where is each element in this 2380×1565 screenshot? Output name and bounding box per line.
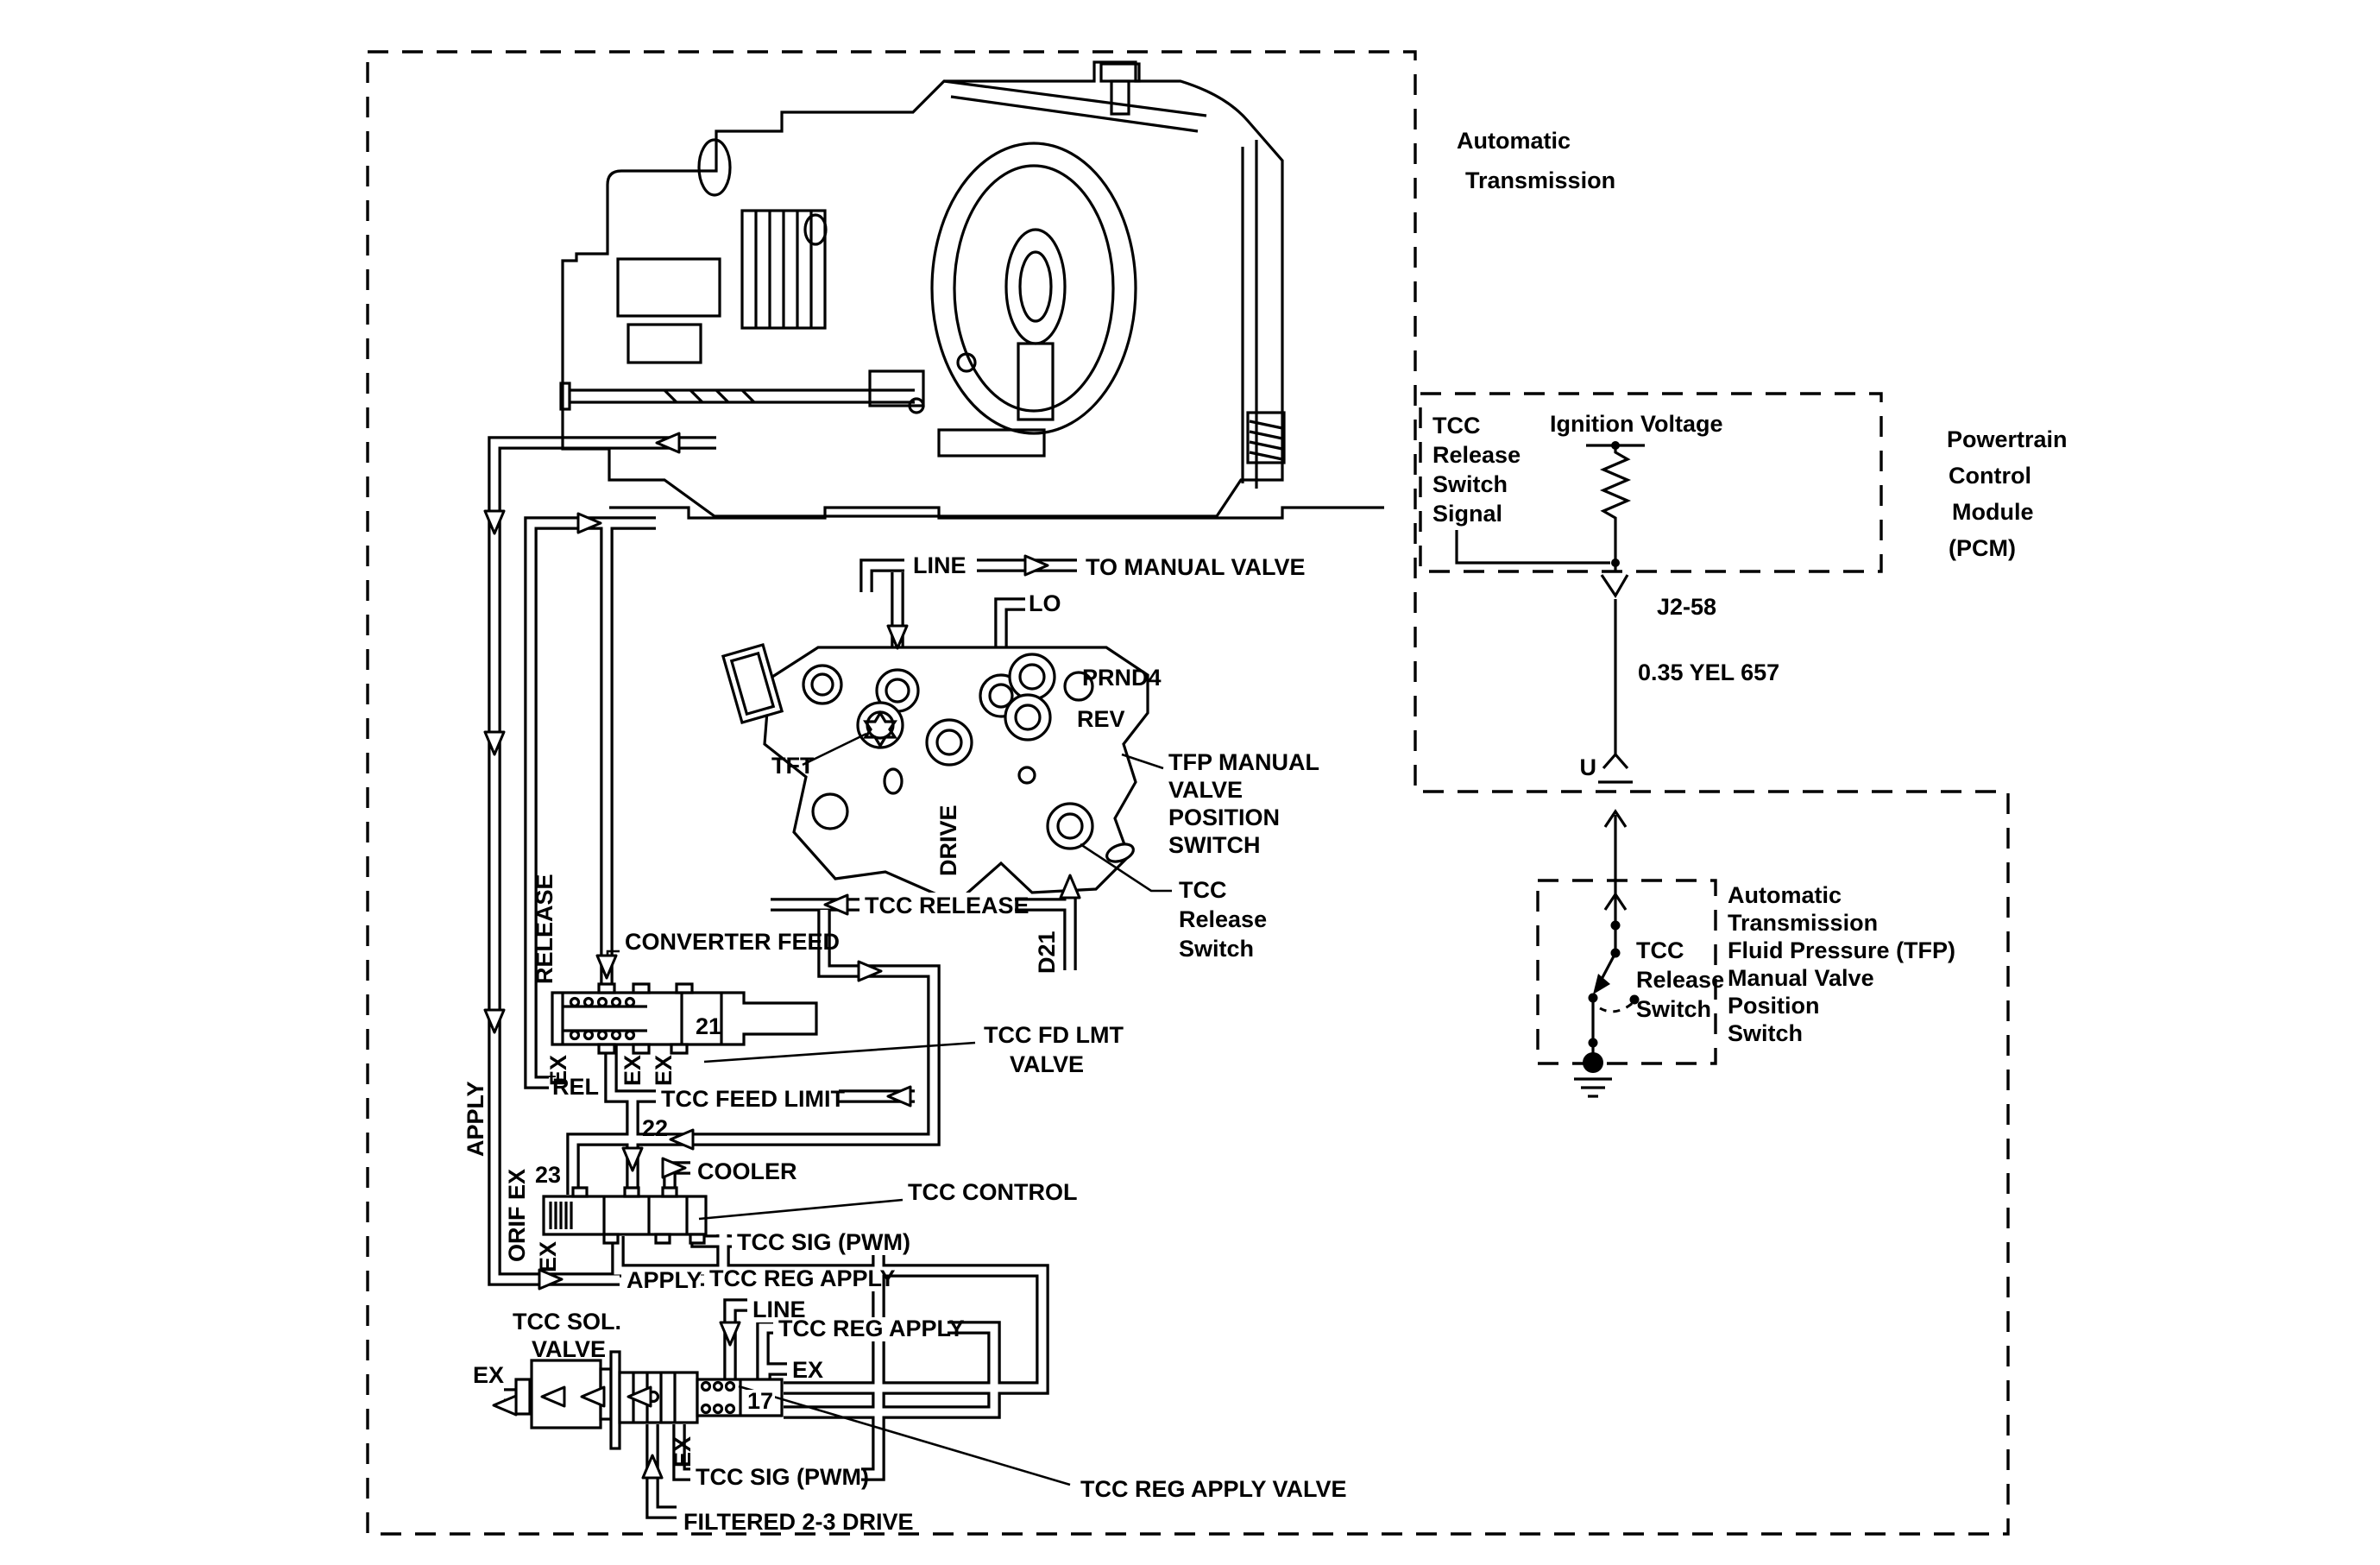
apply-label-v: APPLY	[463, 1081, 488, 1157]
tfp-manual-label-2: VALVE	[1168, 777, 1243, 803]
tcc-fd-lmt-label-2: VALVE	[1010, 1051, 1084, 1077]
pcm-name-3: Module	[1952, 499, 2034, 525]
tfp-box-name-1: Automatic	[1728, 882, 1842, 908]
tfp-manual-label-4: SWITCH	[1168, 832, 1260, 858]
pcm-name-4: (PCM)	[1949, 535, 2016, 561]
ground-dot	[1583, 1052, 1603, 1073]
valve-22-label: 22	[642, 1115, 668, 1141]
orif-ex-label: ORIF EX	[504, 1169, 530, 1262]
switch-connector	[723, 645, 782, 723]
ignition-voltage-label: Ignition Voltage	[1550, 411, 1722, 437]
tcc-reg-apply-valve-label: TCC REG APPLY VALVE	[1080, 1476, 1347, 1502]
tcc-sig-pwm-label-2: TCC SIG (PWM)	[696, 1464, 869, 1490]
tfp-box-name-5: Position	[1728, 993, 1820, 1019]
automatic-transmission-title-2: Transmission	[1465, 167, 1615, 193]
tcc-feed-limit-label: TCC FEED LIMIT	[661, 1086, 845, 1112]
rev-label: REV	[1077, 706, 1125, 732]
tfp-manual-label-3: POSITION	[1168, 805, 1280, 830]
ground-icon	[1574, 1079, 1612, 1096]
automatic-transmission-title-1: Automatic	[1457, 128, 1571, 154]
pcm-signal-2: Release	[1432, 442, 1521, 468]
tcc-reg-apply-label-2: TCC REG APPLY	[778, 1316, 965, 1341]
tft-label: TFT	[771, 753, 815, 779]
wire-label: 0.35 YEL 657	[1638, 659, 1779, 685]
drive-label: DRIVE	[935, 805, 961, 876]
line-label: LINE	[913, 552, 966, 578]
rel-label: REL	[552, 1074, 599, 1100]
resistor	[1603, 445, 1628, 563]
tcc-release-switch-label-2: Release	[1179, 906, 1267, 932]
pcm-signal-1: TCC	[1432, 413, 1481, 439]
to-manual-valve-label: TO MANUAL VALVE	[1086, 554, 1306, 580]
tfp-box-switch-3: Switch	[1636, 996, 1711, 1022]
tcc-sol-label-2: VALVE	[532, 1336, 606, 1362]
release-label-v: RELEASE	[532, 874, 557, 984]
converter-feed-label: CONVERTER FEED	[625, 929, 840, 955]
cooler-label: COOLER	[697, 1158, 797, 1184]
tfp-box-switch-2: Release	[1636, 967, 1724, 993]
valve-17-label: 17	[747, 1388, 773, 1414]
ex-label-6: EX	[473, 1362, 504, 1388]
tcc-release-label: TCC RELEASE	[865, 893, 1029, 918]
tfp-box-name-2: Transmission	[1728, 910, 1878, 936]
ex-label-5: EX	[792, 1357, 823, 1383]
tcc-sig-pwm-label-1: TCC SIG (PWM)	[737, 1229, 910, 1255]
apply-label-h: APPLY	[626, 1267, 702, 1293]
text-labels: Automatic Transmission TCC Release Switc…	[463, 128, 2068, 1535]
tcc-sol-label-1: TCC SOL.	[513, 1309, 621, 1335]
tcc-release-switch-label-3: Switch	[1179, 936, 1254, 962]
filtered-2-3-drive-label: FILTERED 2-3 DRIVE	[683, 1509, 914, 1535]
tfp-manual-label-1: TFP MANUAL	[1168, 749, 1319, 775]
tcc-fd-lmt-label-1: TCC FD LMT	[984, 1022, 1124, 1048]
diagram-canvas: Automatic Transmission TCC Release Switc…	[0, 0, 2380, 1565]
tcc-release-switch-label-1: TCC	[1179, 877, 1227, 903]
tcc-control-label: TCC CONTROL	[908, 1179, 1077, 1205]
ex-label-7: EX	[670, 1436, 696, 1467]
ex-label-4: EX	[535, 1241, 561, 1272]
tcc-control-valve	[544, 1188, 706, 1243]
tfp-box-name-6: Switch	[1728, 1020, 1803, 1046]
wire-up-arrow	[1605, 811, 1626, 880]
terminal-u-label: U	[1580, 754, 1597, 780]
pcm-name-1: Powertrain	[1947, 426, 2068, 452]
connector-symbol	[1602, 575, 1628, 596]
d21-label: D21	[1034, 931, 1060, 974]
pcm-name-2: Control	[1949, 463, 2031, 489]
tfp-box-name-4: Manual Valve	[1728, 965, 1874, 991]
tcc-reg-apply-label-1: TCC REG APPLY	[709, 1265, 896, 1291]
tfp-box-switch-1: TCC	[1636, 937, 1684, 963]
lo-label: LO	[1029, 590, 1061, 616]
ex-label-2: EX	[620, 1055, 645, 1086]
tcc-release-switch-circuit	[1574, 880, 1640, 1096]
prnd4-label: PRND4	[1082, 665, 1162, 691]
ex-label-3: EX	[651, 1055, 677, 1086]
pcm-signal-3: Switch	[1432, 471, 1508, 497]
tfp-box-name-3: Fluid Pressure (TFP)	[1728, 937, 1955, 963]
transmission-cross-section	[561, 62, 1384, 518]
pcm-signal-4: Signal	[1432, 501, 1502, 527]
valve-21-label: 21	[696, 1013, 721, 1039]
valve-23-label: 23	[535, 1162, 561, 1188]
tcc-fd-lmt-valve	[552, 984, 816, 1053]
pcm-pin-label: J2-58	[1657, 594, 1716, 620]
